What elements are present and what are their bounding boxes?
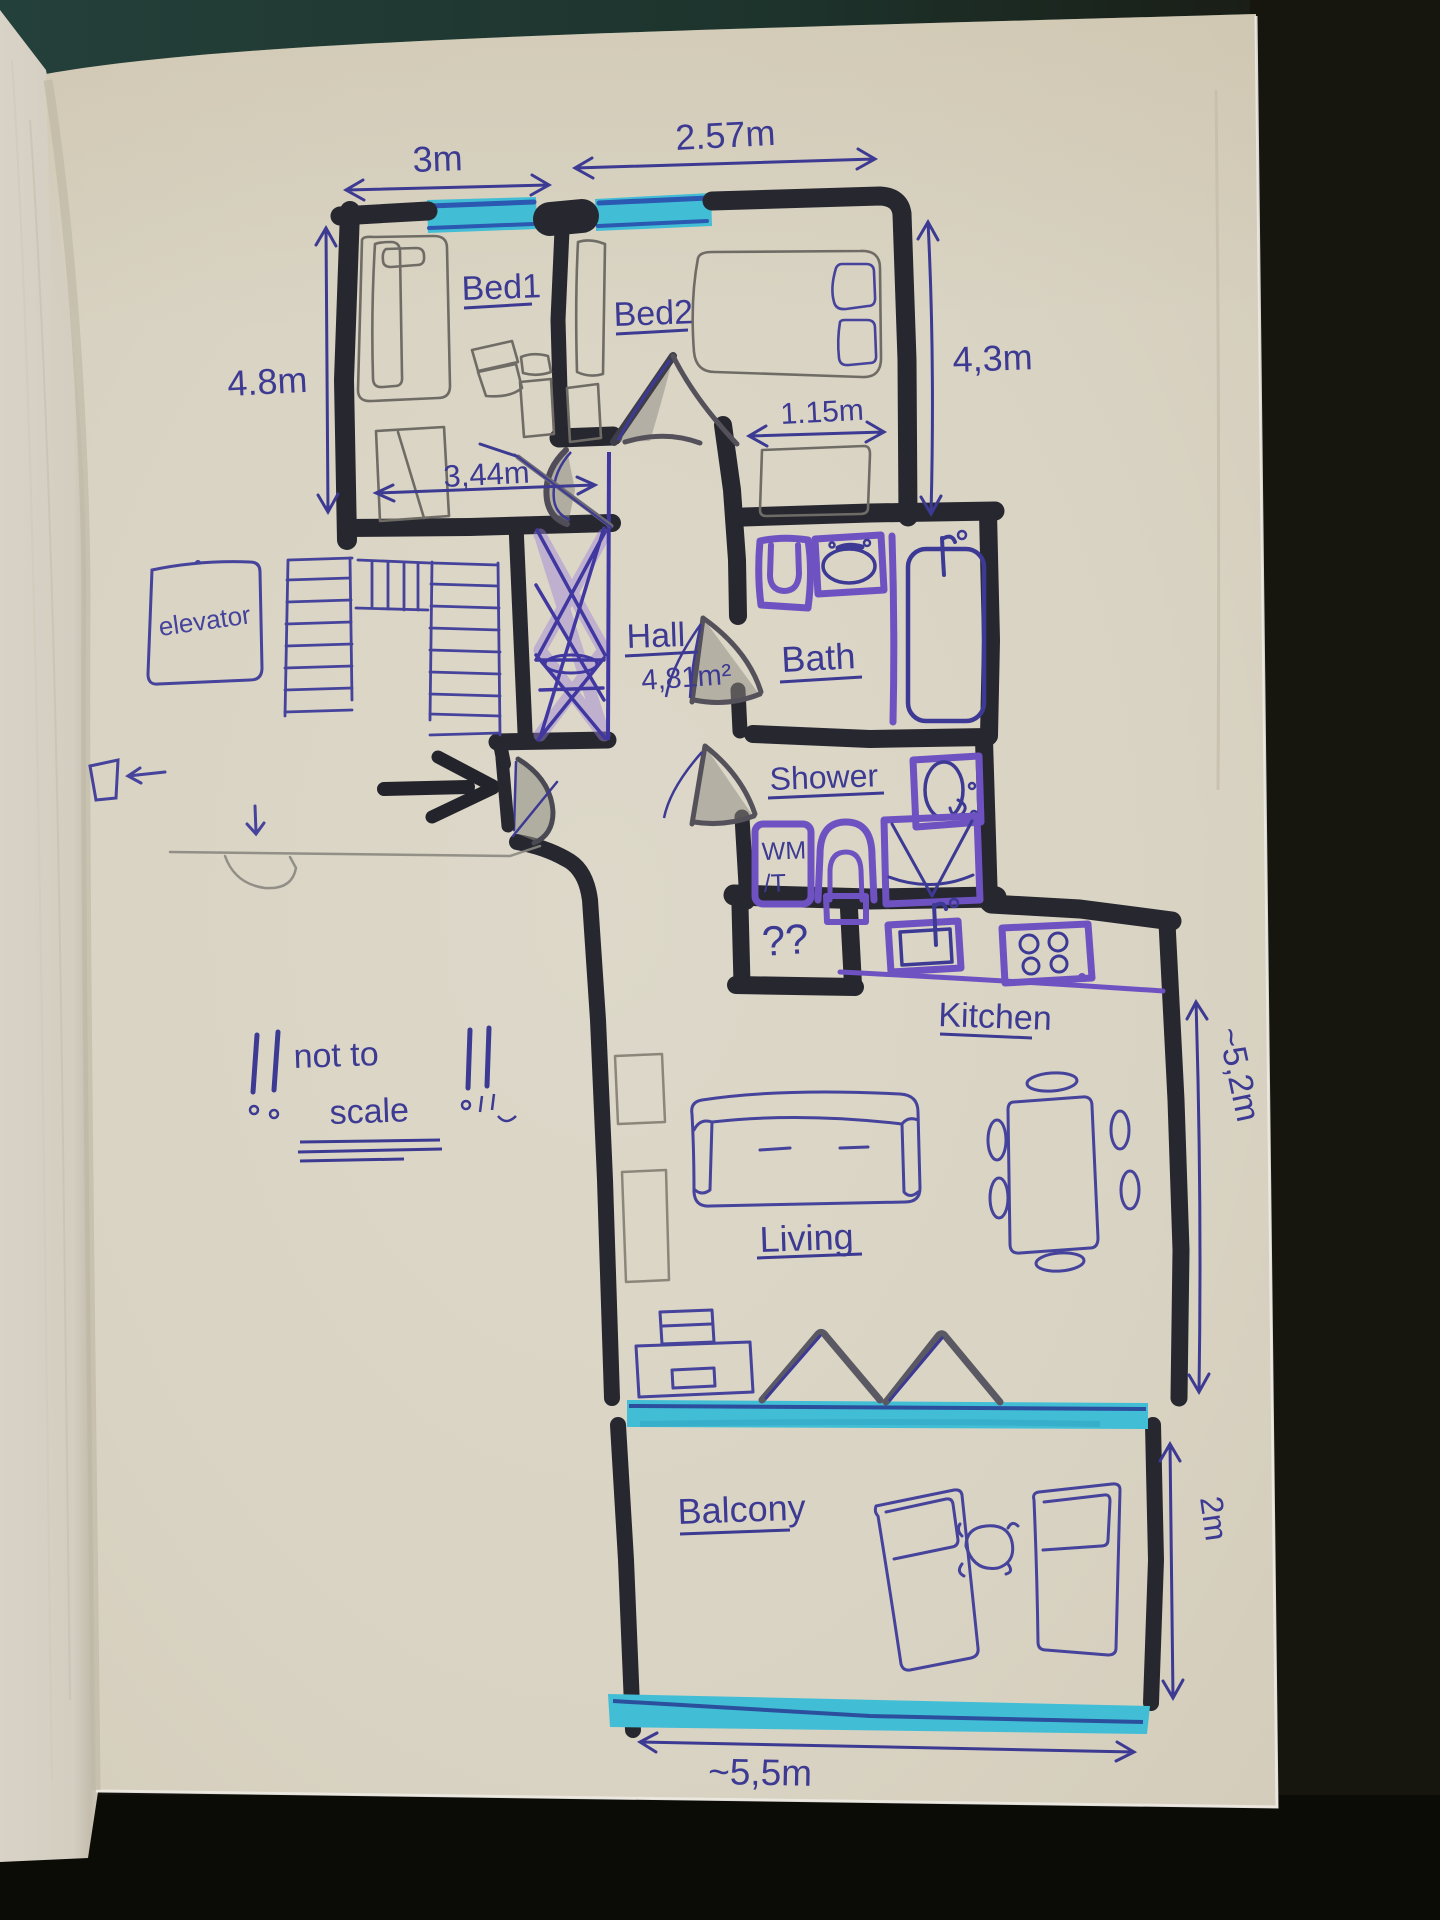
svg-text:Bath: Bath bbox=[780, 635, 856, 680]
svg-text:4.8m: 4.8m bbox=[226, 359, 308, 404]
svg-text:Hall: Hall bbox=[626, 616, 686, 656]
svg-text:3,44m: 3,44m bbox=[443, 455, 531, 494]
svg-text:not to: not to bbox=[293, 1035, 379, 1076]
svg-text:1.15m: 1.15m bbox=[780, 394, 865, 431]
svg-text:2m: 2m bbox=[1193, 1494, 1235, 1543]
svg-text:~5,5m: ~5,5m bbox=[708, 1751, 813, 1794]
svg-text:2.57m: 2.57m bbox=[674, 112, 776, 158]
svg-text:4,3m: 4,3m bbox=[952, 336, 1033, 380]
svg-text:4,81m²: 4,81m² bbox=[640, 659, 733, 697]
svg-text:??: ?? bbox=[760, 915, 810, 965]
svg-text:Bed1: Bed1 bbox=[461, 267, 542, 308]
svg-text:WM: WM bbox=[761, 836, 806, 866]
svg-text:Bed2: Bed2 bbox=[613, 293, 694, 334]
svg-text:Shower: Shower bbox=[769, 757, 879, 797]
svg-text:Kitchen: Kitchen bbox=[938, 996, 1053, 1038]
svg-text:/T: /T bbox=[763, 869, 786, 898]
svg-text:scale: scale bbox=[329, 1091, 410, 1132]
svg-text:3m: 3m bbox=[412, 137, 463, 180]
svg-text:Balcony: Balcony bbox=[677, 1487, 806, 1532]
